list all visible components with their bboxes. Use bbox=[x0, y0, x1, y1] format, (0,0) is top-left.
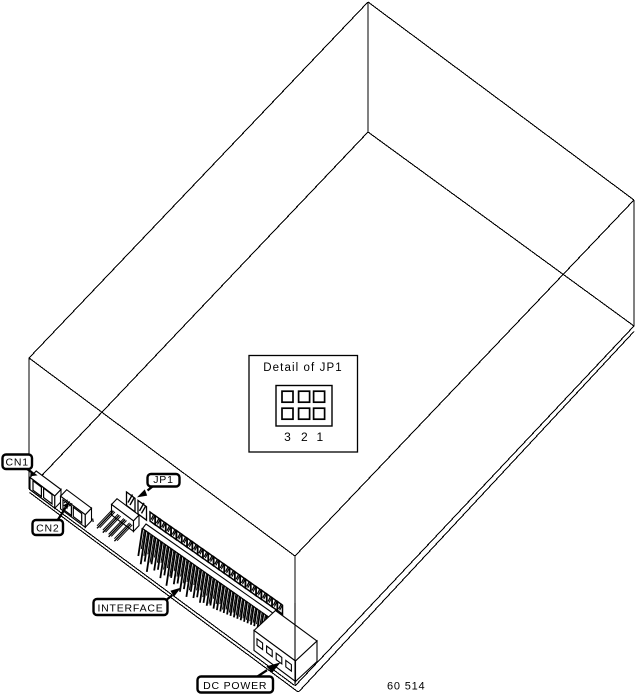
svg-text:CN2: CN2 bbox=[36, 522, 59, 534]
svg-text:60 514: 60 514 bbox=[387, 681, 425, 693]
svg-text:1: 1 bbox=[316, 430, 323, 444]
svg-text:JP1: JP1 bbox=[153, 474, 174, 486]
svg-text:DC POWER: DC POWER bbox=[203, 680, 267, 692]
svg-text:CN1: CN1 bbox=[5, 456, 28, 468]
svg-text:2: 2 bbox=[301, 430, 308, 444]
svg-text:Detail of JP1: Detail of JP1 bbox=[263, 362, 343, 374]
svg-text:INTERFACE: INTERFACE bbox=[97, 602, 163, 614]
svg-text:3: 3 bbox=[284, 430, 291, 444]
